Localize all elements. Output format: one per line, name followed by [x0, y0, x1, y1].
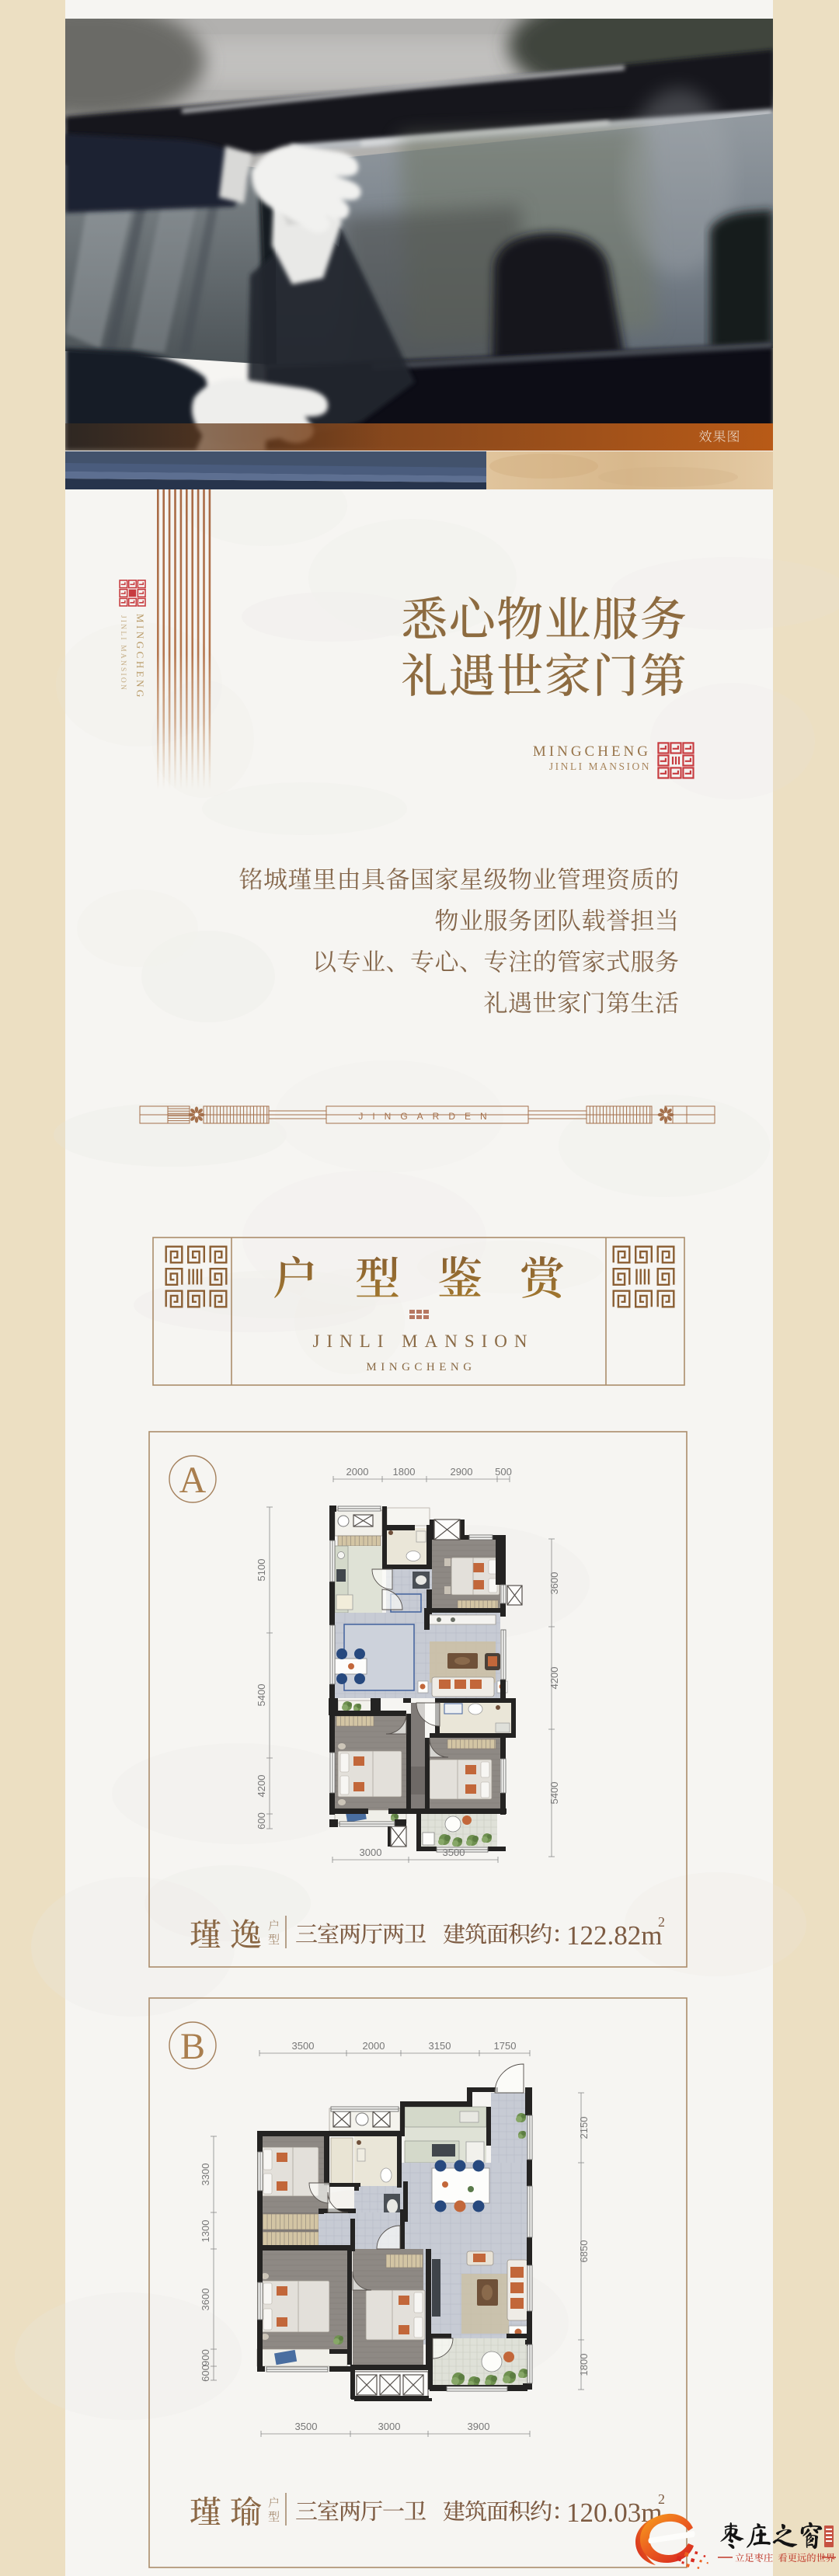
svg-text:5400: 5400: [548, 1782, 560, 1805]
svg-text:5100: 5100: [256, 1559, 267, 1582]
svg-text:6850: 6850: [578, 2240, 590, 2263]
svg-text:2000: 2000: [346, 1466, 369, 1478]
svg-text:JINLI MANSION: JINLI MANSION: [119, 615, 127, 691]
svg-text:3500: 3500: [295, 2421, 318, 2432]
svg-text:JINLI MANSION: JINLI MANSION: [549, 761, 651, 772]
svg-text:MINGCHENG: MINGCHENG: [533, 743, 651, 760]
svg-text:3900: 3900: [468, 2421, 490, 2432]
svg-text:3000: 3000: [360, 1847, 382, 1858]
svg-text:4200: 4200: [256, 1775, 267, 1798]
svg-text:JINLI MANSION: JINLI MANSION: [312, 1332, 534, 1351]
svg-text:MINGCHENG: MINGCHENG: [366, 1361, 475, 1373]
svg-text:3000: 3000: [378, 2421, 401, 2432]
svg-text:3300: 3300: [200, 2163, 211, 2186]
svg-text:4200: 4200: [548, 1667, 560, 1690]
svg-text:5400: 5400: [256, 1684, 267, 1707]
svg-text:1800: 1800: [393, 1466, 416, 1478]
svg-text:1750: 1750: [494, 2040, 517, 2052]
svg-text:600: 600: [256, 1812, 267, 1829]
svg-text:2900: 2900: [451, 1466, 473, 1478]
svg-text:900: 900: [200, 2349, 211, 2366]
svg-text:1800: 1800: [578, 2354, 590, 2376]
svg-text:2150: 2150: [578, 2117, 590, 2139]
svg-text:3500: 3500: [292, 2040, 315, 2052]
svg-text:A: A: [179, 1460, 207, 1501]
svg-text:500: 500: [495, 1466, 512, 1478]
svg-text:B: B: [180, 2026, 205, 2067]
svg-text:MINGCHENG: MINGCHENG: [134, 614, 146, 700]
svg-text:2000: 2000: [363, 2040, 385, 2052]
svg-text:2: 2: [658, 1914, 665, 1930]
svg-text:3500: 3500: [443, 1847, 465, 1858]
svg-text:3600: 3600: [548, 1572, 560, 1595]
svg-text:JINGARDEN: JINGARDEN: [358, 1111, 496, 1122]
svg-text:600: 600: [200, 2365, 211, 2382]
svg-text:1300: 1300: [200, 2220, 211, 2243]
svg-text:3600: 3600: [200, 2289, 211, 2311]
svg-text:3150: 3150: [429, 2040, 451, 2052]
svg-text:122.82m: 122.82m: [566, 1920, 662, 1951]
svg-text:2: 2: [658, 2491, 665, 2507]
